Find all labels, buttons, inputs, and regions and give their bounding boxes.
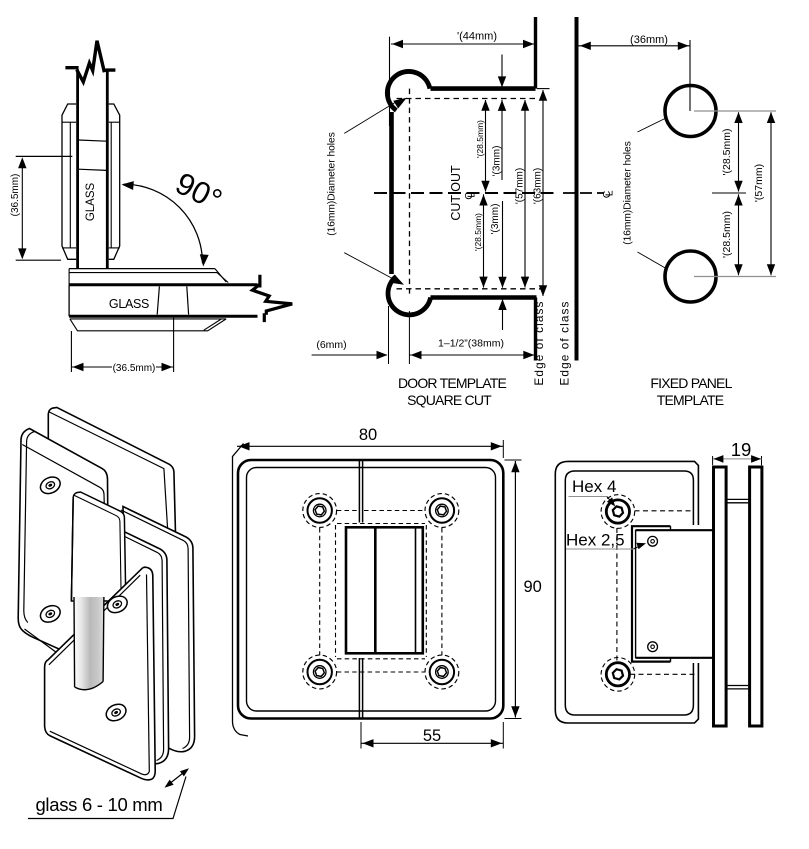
svg-text:L: L	[465, 192, 477, 198]
svg-text:'(28.5mm): '(28.5mm)	[473, 213, 483, 251]
svg-text:(16mm)Diameter holes: (16mm)Diameter holes	[623, 141, 634, 245]
svg-text:'(63mm): '(63mm)	[533, 168, 544, 204]
svg-text:'(44mm): '(44mm)	[457, 31, 497, 43]
svg-text:'(3mm): '(3mm)	[490, 204, 501, 235]
svg-text:glass 6 - 10 mm: glass 6 - 10 mm	[35, 794, 162, 815]
svg-text:Hex 2,5: Hex 2,5	[566, 531, 625, 550]
svg-text:DOOR TEMPLATE: DOOR TEMPLATE	[398, 375, 507, 391]
svg-text:'(57mm): '(57mm)	[753, 164, 765, 202]
svg-text:L: L	[604, 190, 616, 196]
svg-text:55: 55	[423, 727, 441, 745]
svg-text:SQUARE CUT: SQUARE CUT	[407, 392, 492, 408]
svg-text:Edge of class: Edge of class	[532, 300, 546, 385]
svg-text:1–1/2”(38mm): 1–1/2”(38mm)	[438, 338, 504, 350]
svg-text:(16mm)Diameter holes: (16mm)Diameter holes	[327, 132, 338, 236]
svg-text:80: 80	[359, 426, 377, 444]
svg-text:90°: 90°	[170, 165, 228, 217]
svg-text:CUT OUT: CUT OUT	[449, 165, 463, 221]
svg-text:Hex 4: Hex 4	[572, 477, 616, 496]
svg-text:GLASS: GLASS	[109, 297, 149, 311]
svg-text:FIXED PANEL: FIXED PANEL	[650, 375, 732, 391]
svg-text:TEMPLATE: TEMPLATE	[657, 392, 724, 408]
svg-text:'(57mm): '(57mm)	[515, 168, 526, 204]
svg-text:'(28.5mm): '(28.5mm)	[721, 211, 733, 258]
svg-text:GLASS: GLASS	[85, 182, 97, 221]
svg-text:'(28.5mm): '(28.5mm)	[721, 129, 733, 176]
svg-text:(36.5mm): (36.5mm)	[113, 363, 156, 374]
svg-text:(36.5mm): (36.5mm)	[10, 174, 21, 217]
svg-text:(36mm): (36mm)	[630, 34, 668, 46]
svg-text:(6mm): (6mm)	[316, 339, 346, 351]
svg-text:19: 19	[731, 439, 752, 460]
svg-text:'(3mm): '(3mm)	[492, 146, 503, 177]
svg-text:Edge of class: Edge of class	[558, 300, 572, 385]
svg-text:90: 90	[524, 578, 542, 596]
svg-text:'(28.5mm): '(28.5mm)	[475, 120, 485, 158]
